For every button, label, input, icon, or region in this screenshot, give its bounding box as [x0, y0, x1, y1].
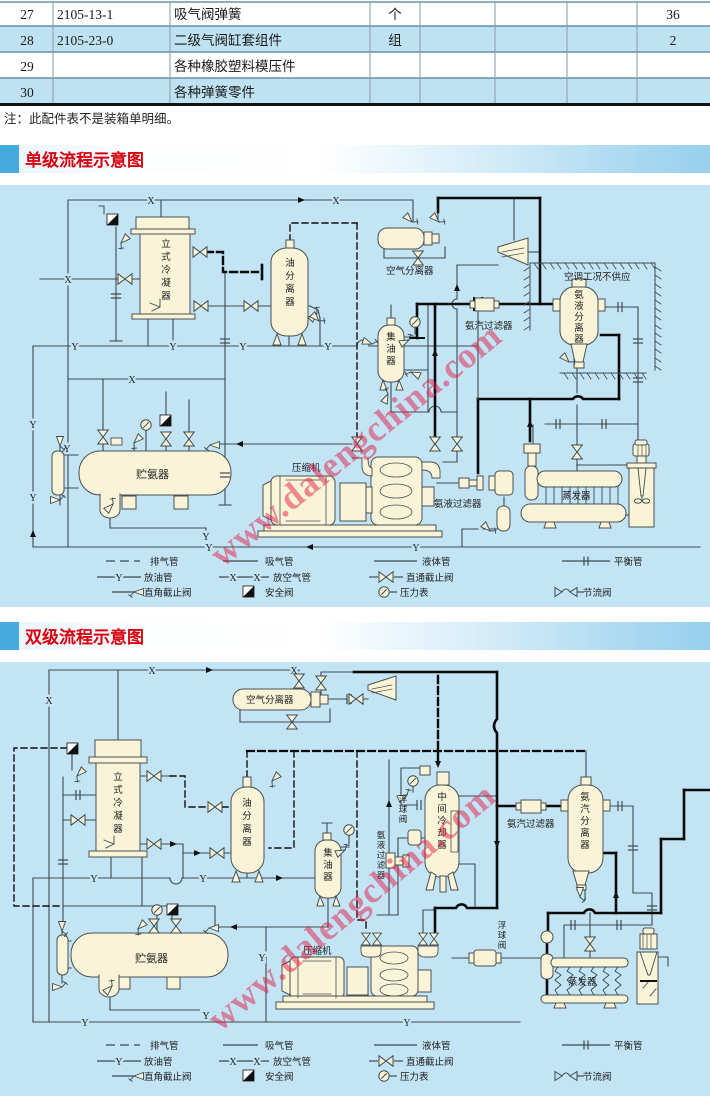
svg-text:贮氨器: 贮氨器: [135, 952, 168, 965]
svg-text:放空气管: 放空气管: [273, 1056, 311, 1068]
svg-text:组: 组: [388, 33, 402, 48]
svg-text:X: X: [253, 573, 261, 584]
svg-text:压力表: 压力表: [400, 1071, 429, 1083]
svg-text:安全阀: 安全阀: [265, 1071, 294, 1083]
svg-text:Y: Y: [324, 342, 331, 353]
svg-text:注：此配件表不是装箱单明细。: 注：此配件表不是装箱单明细。: [4, 111, 179, 126]
svg-text:Y: Y: [412, 543, 419, 554]
svg-text:直通截止阀: 直通截止阀: [406, 572, 454, 584]
svg-text:液体管: 液体管: [422, 1040, 451, 1052]
svg-text:立式冷凝器: 立式冷凝器: [161, 238, 171, 302]
svg-text:平衡管: 平衡管: [614, 1040, 643, 1052]
svg-text:Y: Y: [90, 874, 97, 885]
svg-text:X: X: [148, 666, 156, 677]
svg-text:集油器: 集油器: [323, 847, 333, 883]
svg-text:节流阀: 节流阀: [583, 1071, 612, 1083]
svg-text:Y: Y: [29, 420, 36, 431]
svg-text:Y: Y: [199, 874, 206, 885]
svg-text:液体管: 液体管: [422, 556, 451, 568]
svg-text:X: X: [332, 196, 340, 207]
svg-text:Y: Y: [115, 573, 122, 584]
svg-text:放油管: 放油管: [144, 1056, 173, 1068]
svg-text:立式冷凝器: 立式冷凝器: [113, 771, 123, 835]
svg-text:浮球阀: 浮球阀: [498, 920, 507, 950]
svg-text:压力表: 压力表: [400, 587, 429, 599]
svg-text:2: 2: [670, 33, 677, 48]
svg-text:双级流程示意图: 双级流程示意图: [25, 627, 144, 647]
svg-text:节流阀: 节流阀: [583, 587, 612, 599]
svg-text:吸气阀弹簧: 吸气阀弹簧: [174, 7, 242, 22]
svg-text:Y: Y: [81, 1018, 88, 1029]
svg-text:贮氨器: 贮氨器: [136, 468, 169, 481]
svg-text:集油器: 集油器: [386, 331, 396, 367]
svg-text:直角截止阀: 直角截止阀: [144, 1071, 192, 1083]
svg-text:Y: Y: [71, 342, 78, 353]
svg-text:Y: Y: [239, 342, 246, 353]
svg-text:各种橡胶塑料模压件: 各种橡胶塑料模压件: [174, 58, 296, 74]
svg-text:安全阀: 安全阀: [265, 587, 294, 599]
svg-text:放空气管: 放空气管: [273, 572, 311, 584]
svg-text:直通截止阀: 直通截止阀: [406, 1056, 454, 1068]
svg-text:蒸发器: 蒸发器: [568, 976, 597, 988]
svg-text:28: 28: [20, 33, 34, 48]
svg-text:X: X: [45, 696, 53, 707]
svg-text:单级流程示意图: 单级流程示意图: [25, 150, 144, 170]
svg-text:X: X: [147, 196, 155, 207]
svg-text:X: X: [128, 375, 136, 386]
svg-text:吸气管: 吸气管: [265, 556, 294, 568]
svg-text:空气分离器: 空气分离器: [246, 694, 294, 706]
svg-text:Y: Y: [169, 342, 176, 353]
svg-text:个: 个: [388, 7, 402, 22]
svg-text:氨液过滤器: 氨液过滤器: [434, 498, 482, 510]
svg-text:X: X: [229, 573, 237, 584]
svg-text:27: 27: [20, 7, 34, 22]
svg-text:排气管: 排气管: [150, 556, 179, 568]
svg-text:2105-13-1: 2105-13-1: [57, 7, 113, 22]
svg-text:平衡管: 平衡管: [614, 556, 643, 568]
svg-text:排气管: 排气管: [150, 1040, 179, 1052]
svg-text:X: X: [253, 1057, 261, 1068]
svg-text:Y: Y: [29, 493, 36, 504]
svg-text:各种弹簧零件: 各种弹簧零件: [174, 85, 255, 100]
svg-text:蒸发器: 蒸发器: [562, 490, 591, 502]
svg-text:Y: Y: [403, 1018, 410, 1029]
svg-text:空气分离器: 空气分离器: [386, 265, 434, 277]
svg-text:X: X: [229, 1057, 237, 1068]
svg-text:30: 30: [20, 85, 34, 100]
svg-text:29: 29: [20, 59, 34, 74]
svg-text:浮球阀: 浮球阀: [399, 794, 408, 824]
svg-text:二级气阀缸套组件: 二级气阀缸套组件: [174, 32, 282, 48]
svg-text:氨液分离器: 氨液分离器: [574, 289, 584, 345]
svg-text:空调工况不供应: 空调工况不供应: [564, 271, 631, 283]
svg-text:氨汽过滤器: 氨汽过滤器: [507, 818, 555, 830]
svg-text:X: X: [64, 275, 72, 286]
svg-text:2105-23-0: 2105-23-0: [57, 33, 113, 48]
svg-text:直角截止阀: 直角截止阀: [144, 587, 192, 599]
svg-text:放油管: 放油管: [144, 572, 173, 584]
svg-text:Y: Y: [115, 1057, 122, 1068]
svg-text:吸气管: 吸气管: [265, 1040, 294, 1052]
svg-text:36: 36: [666, 7, 680, 22]
svg-text:氨汽分离器: 氨汽分离器: [580, 791, 590, 851]
